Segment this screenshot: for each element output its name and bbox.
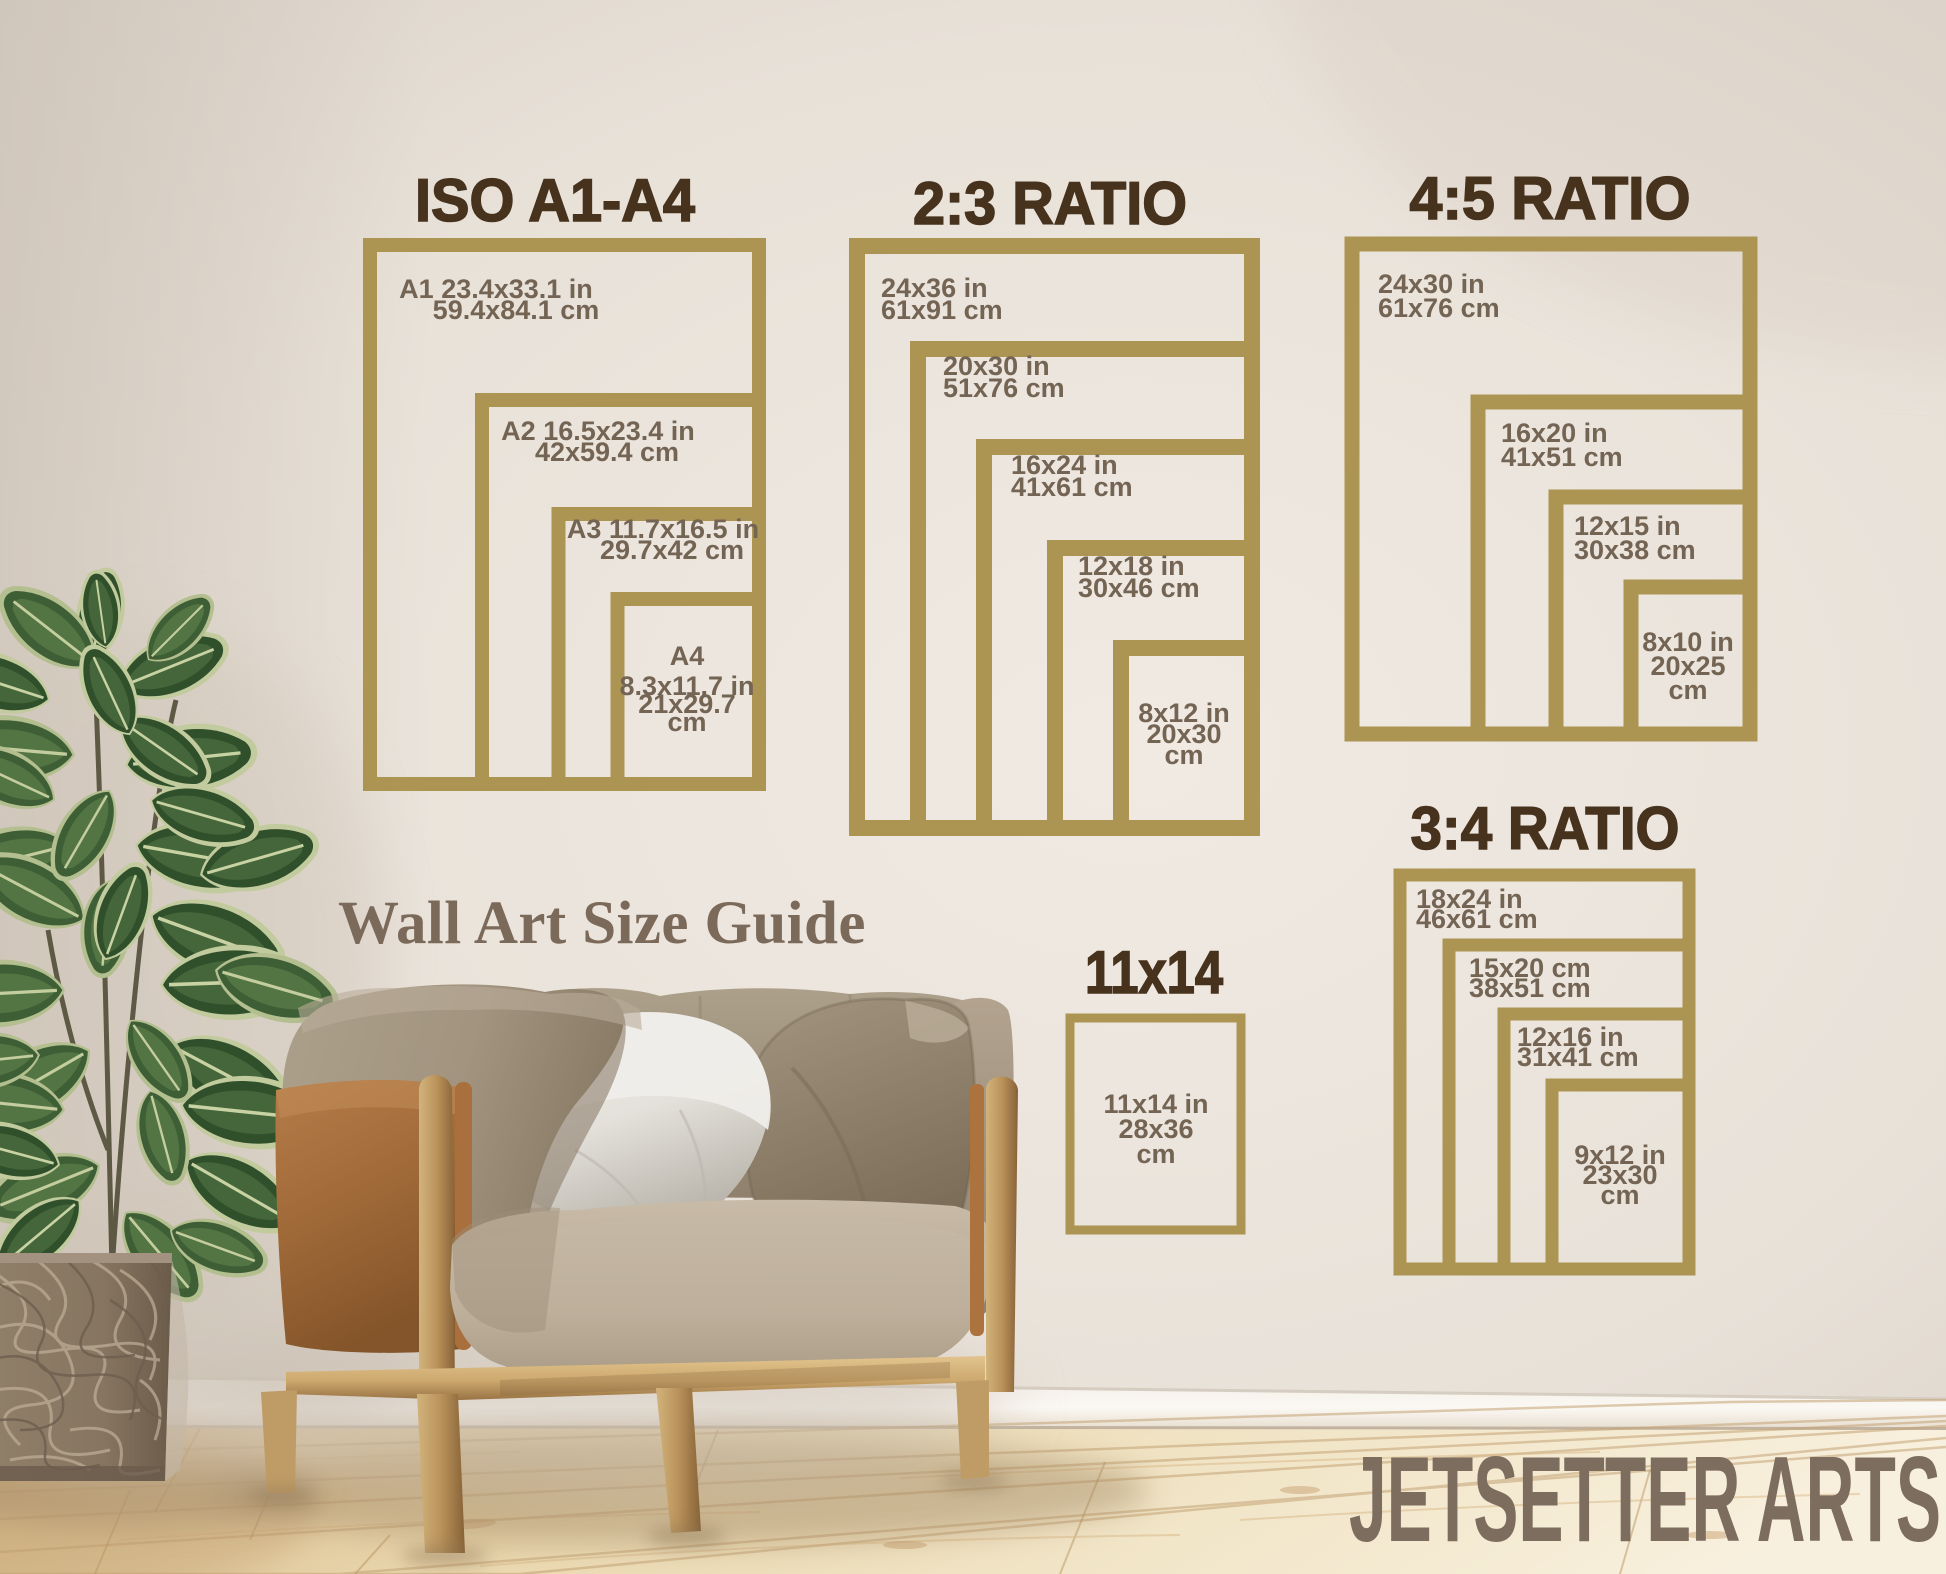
svg-text:30x38 cm: 30x38 cm <box>1574 535 1696 565</box>
svg-text:51x76 cm: 51x76 cm <box>943 373 1065 403</box>
svg-text:46x61 cm: 46x61 cm <box>1416 904 1538 934</box>
svg-text:41x61 cm: 41x61 cm <box>1011 472 1133 502</box>
svg-text:30x46 cm: 30x46 cm <box>1078 573 1200 603</box>
svg-text:cm: cm <box>1668 675 1707 705</box>
svg-text:3:4 RATIO: 3:4 RATIO <box>1411 795 1680 862</box>
svg-text:cm: cm <box>667 707 706 737</box>
svg-text:42x59.4 cm: 42x59.4 cm <box>535 437 679 467</box>
svg-text:41x51 cm: 41x51 cm <box>1501 442 1623 472</box>
svg-text:38x51 cm: 38x51 cm <box>1469 973 1591 1003</box>
svg-text:Wall Art Size Guide: Wall Art Size Guide <box>338 890 866 957</box>
svg-text:A4: A4 <box>670 641 705 671</box>
svg-text:cm: cm <box>1164 740 1203 770</box>
svg-text:61x76 cm: 61x76 cm <box>1378 293 1500 323</box>
svg-text:61x91 cm: 61x91 cm <box>881 295 1003 325</box>
svg-text:ISO A1-A4: ISO A1-A4 <box>415 167 696 234</box>
svg-text:JETSETTER ARTS: JETSETTER ARTS <box>1349 1431 1941 1567</box>
svg-text:59.4x84.1 cm: 59.4x84.1 cm <box>433 295 600 325</box>
svg-text:11x14: 11x14 <box>1085 939 1224 1006</box>
svg-text:29.7x42 cm: 29.7x42 cm <box>600 535 744 565</box>
svg-text:2:3 RATIO: 2:3 RATIO <box>913 170 1187 237</box>
svg-text:cm: cm <box>1136 1139 1175 1169</box>
svg-text:4:5 RATIO: 4:5 RATIO <box>1410 165 1691 232</box>
svg-text:cm: cm <box>1600 1180 1639 1210</box>
svg-text:31x41 cm: 31x41 cm <box>1517 1042 1639 1072</box>
